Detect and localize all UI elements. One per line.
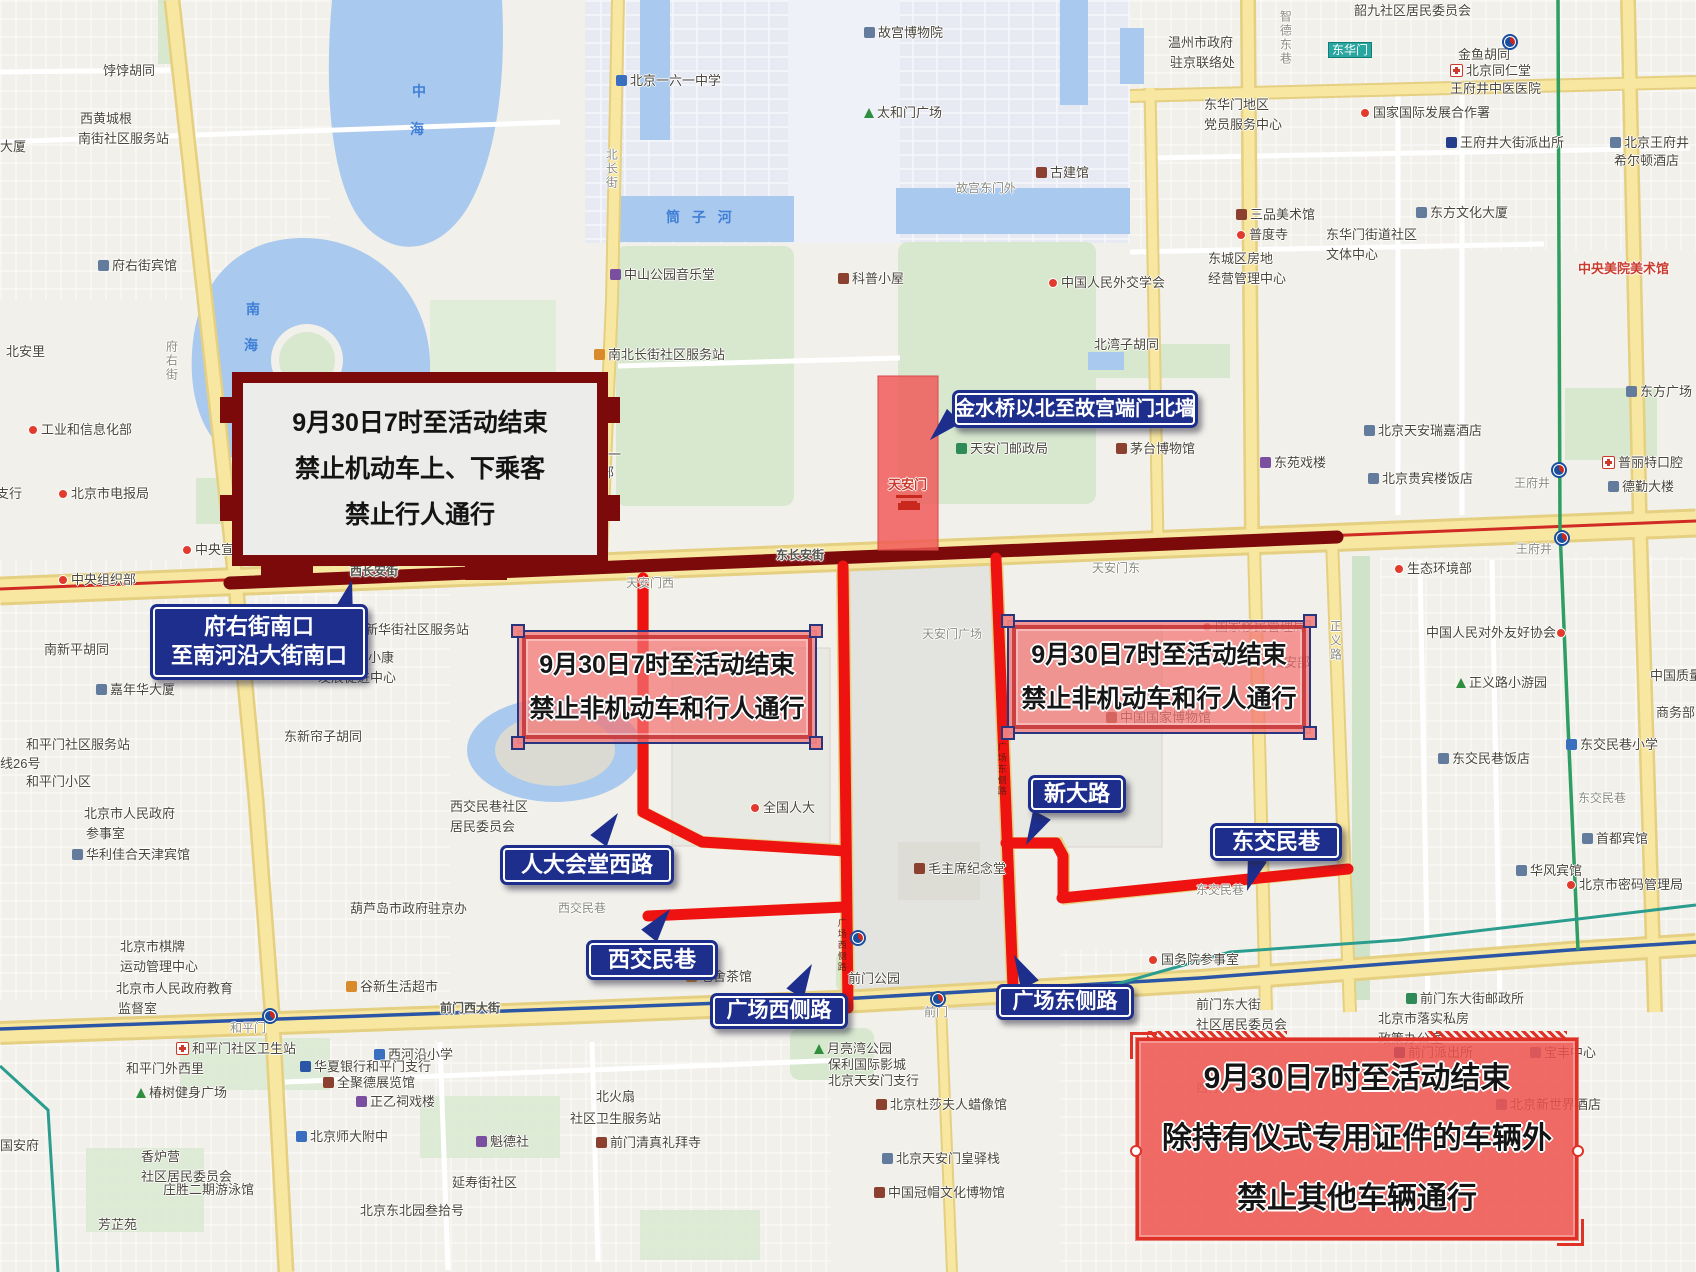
map-label: 经营管理中心	[1208, 271, 1286, 287]
map-label: 华利佳合天津宾馆	[72, 847, 190, 863]
map-label-text: 府右街	[164, 340, 178, 382]
map-label: 北京市密码管理局	[1566, 877, 1683, 893]
map-label-text: 全国人大	[763, 800, 815, 816]
map-label: 国安府	[0, 1138, 39, 1154]
tree-icon	[136, 1088, 146, 1098]
map-label-text: 中央美院美术馆	[1578, 261, 1669, 277]
callout-body: 西交民巷	[589, 943, 715, 977]
school-icon	[296, 1131, 307, 1142]
museum-icon	[876, 1099, 887, 1110]
map-label: 商务部	[1656, 705, 1695, 721]
restriction-line: 9月30日7时至活动结束	[519, 643, 815, 687]
map-label: 西长安街	[350, 564, 398, 578]
map-label: 科普小屋	[838, 271, 904, 287]
callout-label: 金水桥以北至故宫端门北墙	[955, 396, 1195, 422]
callout-body: 人大会堂西路	[503, 848, 671, 882]
map-label-text: 王府井	[1514, 476, 1550, 490]
map-label-text: 东苑戏楼	[1274, 455, 1326, 471]
map-label: 温州市政府	[1168, 35, 1233, 51]
map-label: 月亮湾公园	[814, 1041, 892, 1057]
map-label: 东新帘子胡同	[284, 729, 362, 745]
theater-icon	[356, 1096, 367, 1107]
map-label-text: 华夏银行和平门支行	[314, 1059, 431, 1075]
map-label: 生态环境部	[1394, 561, 1472, 577]
map-label: 谷新生活超市	[346, 979, 438, 995]
map-label-text: 故宫东门外	[956, 181, 1016, 195]
map-label-text: 前门东大街	[1196, 997, 1261, 1013]
map-label-text: 古建馆	[1050, 165, 1089, 181]
map-label: 东方文化大厦	[1416, 205, 1508, 221]
map-label-text: 北京东北园叁拾号	[360, 1203, 464, 1219]
map-label-text: 东新帘子胡同	[284, 729, 362, 745]
map-label-text: 天安门邮政局	[970, 441, 1048, 457]
callout-label: 广场西侧路	[727, 997, 832, 1024]
map-label: 海	[244, 337, 262, 354]
map-label: 全聚德展览馆	[323, 1075, 415, 1091]
map-label-text: 文体中心	[1326, 247, 1378, 263]
map-label: 前门东大街邮政所	[1406, 991, 1524, 1007]
map-label-text: 北京天安门皇驿栈	[896, 1151, 1000, 1167]
restriction-line: 禁止其他车辆通行	[1139, 1169, 1575, 1229]
map-label: 北京市棋牌	[120, 939, 185, 955]
map-label-text: 北京杜莎夫人蜡像馆	[890, 1097, 1007, 1113]
map-label-text: 东城区房地	[1208, 251, 1273, 267]
map-label: 保利国际影城	[828, 1057, 906, 1073]
map-label-text: 温州市政府	[1168, 35, 1233, 51]
map-label-text: 北京市人民政府教育	[116, 981, 233, 997]
notice-line: 禁止行人通行	[243, 492, 597, 538]
map-label: 天安门邮政局	[956, 441, 1048, 457]
map-label: 中国质量大厦	[1650, 668, 1696, 684]
museum-icon	[596, 1137, 607, 1148]
map-label: 北京天安门支行	[828, 1073, 919, 1089]
dot-icon	[1360, 108, 1370, 118]
map-label-text: 广场东侧路	[996, 742, 1007, 797]
bld-icon	[96, 684, 107, 695]
map-label: 嘉年华大厦	[96, 682, 175, 698]
dot-icon	[1148, 955, 1158, 965]
map-icon	[896, 495, 925, 510]
map-label-text: 东华门街道社区	[1326, 227, 1417, 243]
map-label: 北新华街社区服务站	[352, 622, 469, 638]
map-label-text: 和平门小区	[26, 774, 91, 790]
map-label: 北京市人民政府	[84, 806, 175, 822]
map-label: 北京市落实私房	[1378, 1011, 1469, 1027]
map-label: 府右街	[164, 340, 178, 382]
map-label-text: 普度寺	[1249, 227, 1288, 243]
map-label-text: 芳芷苑	[98, 1217, 137, 1233]
notice-line: 9月30日7时至活动结束	[243, 400, 597, 446]
map-label-text: 西单支行	[0, 486, 22, 502]
map-label: 南	[246, 301, 264, 318]
shop-icon	[346, 981, 357, 992]
map-label-text: 筒 子 河	[666, 209, 736, 226]
map-label-text: 参事室	[86, 826, 125, 842]
map-label-text: 广场西侧路	[836, 918, 847, 973]
map-label: 中	[412, 83, 430, 100]
map-label-text: 北京天安瑞嘉酒店	[1378, 423, 1482, 439]
map-label: 东交民巷	[1578, 791, 1626, 805]
map-label: 前门西大街	[440, 1001, 500, 1015]
notice-banner-changan: 9月30日7时至活动结束 禁止机动车上、下乘客 禁止行人通行	[232, 372, 608, 566]
map-label: 中山公园音乐堂	[610, 267, 715, 283]
map-label-text: 社区卫生服务站	[570, 1111, 661, 1127]
dot-icon	[58, 489, 68, 499]
dot-icon	[1236, 230, 1246, 240]
map-label-text: 东华门地区	[1204, 97, 1269, 113]
metro-station-icon	[262, 1008, 278, 1024]
map-label: 国务院参事室	[1148, 952, 1239, 968]
map-label-text: 北京天安门支行	[828, 1073, 919, 1089]
map-label: 中国人民外交学会	[1048, 275, 1165, 291]
map-label: 香炉营	[141, 1149, 180, 1165]
map-label: 中国人民对外友好协会	[1426, 625, 1569, 641]
map-label: 北京市人民政府教育	[116, 981, 233, 997]
callout-label: 东交民巷	[1232, 828, 1320, 857]
dot-icon	[1048, 278, 1058, 288]
map-label-text: 西长安街	[350, 564, 398, 578]
map-label-text: 东交民巷小学	[1580, 737, 1658, 753]
map-label-text: 中	[412, 83, 430, 100]
map-label-text: 东交民巷饭店	[1452, 751, 1530, 767]
map-label: 居民委员会	[450, 819, 515, 835]
map-label: 延寿街社区	[452, 1175, 517, 1191]
map-label: 中国冠帽文化博物馆	[874, 1185, 1005, 1201]
map-label: 前门东大街	[1196, 997, 1261, 1013]
map-label-text: 庄胜二期游泳馆	[163, 1182, 254, 1198]
map-label: 中央美院美术馆	[1578, 261, 1669, 277]
bld-icon	[882, 1153, 893, 1164]
map-label: 东交民巷	[1196, 883, 1244, 897]
map-label-text: 东方广场	[1640, 384, 1692, 400]
map-label-text: 德勤大楼	[1622, 479, 1674, 495]
map-label: 天安门东	[1092, 561, 1140, 575]
map-label-text: 北新华街社区服务站	[352, 622, 469, 638]
map-label: 北京天安瑞嘉酒店	[1364, 423, 1482, 439]
metro-station-icon	[850, 930, 866, 946]
map-label: 北火扇	[596, 1089, 635, 1105]
map-label: 北京天安门皇驿栈	[882, 1151, 1000, 1167]
map-label-text: 监督室	[118, 1001, 157, 1017]
map-label-text: 北京市密码管理局	[1579, 877, 1683, 893]
map-label: 大厦	[0, 139, 26, 155]
map-label: 和平门小区	[26, 774, 91, 790]
map-label-text: 毛主席纪念堂	[928, 861, 1006, 877]
map-label: 故宫东门外	[956, 181, 1016, 195]
map-label-text: 王府井	[1516, 542, 1552, 556]
dot-icon	[1556, 628, 1566, 638]
map-label-text: 西交民巷	[558, 901, 606, 915]
map-label: 故宫博物院	[864, 25, 943, 41]
map-label: 西单支行	[0, 486, 22, 502]
map-label-text: 太和门广场	[877, 105, 942, 121]
map-label-text: 葫芦岛市政府驻京办	[350, 901, 467, 917]
police-icon	[1446, 137, 1457, 148]
map-label: 西交民巷社区	[450, 799, 528, 815]
map-label: 东城区房地	[1208, 251, 1273, 267]
restriction-line: 9月30日7时至活动结束	[1139, 1049, 1575, 1109]
map-label: 运动管理中心	[120, 959, 198, 975]
map-label-text: 前门公园	[848, 971, 900, 987]
restriction-line: 禁止非机动车和行人通行	[519, 687, 815, 731]
map-label-text: 西黄城根	[80, 111, 132, 127]
metro-station-icon	[1554, 530, 1570, 546]
map-label-text: 王府井大街派出所	[1460, 135, 1564, 151]
callout-jinshuiqiao: 金水桥以北至故宫端门北墙	[952, 390, 1198, 428]
map-label-text: 北京市人民政府	[84, 806, 175, 822]
map-label-text: 东华门	[1332, 43, 1368, 57]
map-label-text: 东方文化大厦	[1430, 205, 1508, 221]
tree-icon	[814, 1044, 824, 1054]
map-label-text: 党员服务中心	[1204, 117, 1282, 133]
map-label-text: 天安门广场	[922, 627, 982, 641]
restriction-line: 除持有仪式专用证件的车辆外	[1139, 1109, 1575, 1169]
map-label-text: 东交民巷	[1578, 791, 1626, 805]
map-label-text: 嘉年华大厦	[110, 682, 175, 698]
map-label: 东华门地区	[1204, 97, 1269, 113]
bld-icon	[1610, 137, 1621, 148]
map-label: 北京东北园叁拾号	[360, 1203, 464, 1219]
map-label: 南北长街社区服务站	[594, 347, 725, 363]
callout-label: 广场东侧路	[1013, 988, 1118, 1015]
museum-icon	[838, 273, 849, 284]
map-label-text: 线26号	[0, 756, 40, 772]
map-label: 东苑戏楼	[1260, 455, 1326, 471]
tree-icon	[864, 108, 874, 118]
map-label-text: 香炉营	[141, 1149, 180, 1165]
metro-station-icon	[930, 991, 946, 1007]
callout-label: 至南河沿大街南口	[171, 642, 347, 671]
map-label-text: 天安门	[888, 477, 927, 493]
map-label: 东华门	[1328, 42, 1372, 58]
map-label-text: 运动管理中心	[120, 959, 198, 975]
dot-icon	[58, 575, 68, 585]
map-label: 智德东巷	[1278, 10, 1292, 66]
restriction-zone-east: 9月30日7时至活动结束 禁止非机动车和行人通行	[1007, 620, 1311, 734]
map-label: 参事室	[86, 826, 125, 842]
map-label: 广场西侧路	[836, 918, 847, 973]
map-label: 府右街宾馆	[98, 258, 177, 274]
map-label: 南新平胡同	[44, 642, 109, 658]
map-label-text: 故宫博物院	[878, 25, 943, 41]
map-label-text: 北长街	[604, 148, 618, 190]
map-label-text: 智德东巷	[1278, 10, 1292, 66]
dot-icon	[1566, 880, 1576, 890]
map-label-text: 前门东大街邮政所	[1420, 991, 1524, 1007]
map-label-text: 北火扇	[596, 1089, 635, 1105]
map-label: 和平门	[230, 1021, 266, 1035]
map-label-text: 椿树健身广场	[149, 1085, 227, 1101]
map-label-text: 正义路	[1328, 620, 1342, 662]
map-label-text: 居民委员会	[450, 819, 515, 835]
map-label: 德勤大楼	[1608, 479, 1674, 495]
map-label: 北京师大附中	[296, 1129, 388, 1145]
map-label: 北京市电报局	[58, 486, 149, 502]
map-label-text: 和平门社区服务站	[26, 737, 130, 753]
map-label: 和平门外西里	[126, 1061, 204, 1077]
metro-station-icon	[1502, 34, 1518, 50]
shop-icon	[594, 349, 605, 360]
map-label-text: 中国人民外交学会	[1061, 275, 1165, 291]
map-label: 中央组织部	[58, 572, 136, 588]
map-label: 天安门广场	[922, 627, 982, 641]
map-label: 饽饽胡同	[103, 63, 155, 79]
map-label-text: 北京贵宾楼饭店	[1382, 471, 1473, 487]
map-label-text: 延寿街社区	[452, 1175, 517, 1191]
map-label: 东交民巷饭店	[1438, 751, 1530, 767]
bld-icon	[98, 260, 109, 271]
map-label-text: 中国人民对外友好协会	[1426, 625, 1556, 641]
map-label-text: 前门	[924, 1005, 948, 1019]
map-label: 筒 子 河	[666, 209, 736, 226]
map-label: 工业和信息化部	[28, 422, 132, 438]
post-icon	[956, 443, 967, 454]
map-label: 王府井大街派出所	[1446, 135, 1564, 151]
map-label: 北京贵宾楼饭店	[1368, 471, 1473, 487]
tree-icon	[1456, 678, 1466, 688]
restriction-zone-west: 9月30日7时至活动结束 禁止非机动车和行人通行	[517, 630, 817, 744]
map-label-text: 普丽特口腔	[1618, 455, 1683, 471]
map-label-text: 北京一六一中学	[630, 73, 721, 89]
map-label: 北京一六一中学	[616, 73, 721, 89]
map-label-text: 商务部	[1656, 705, 1695, 721]
restriction-line: 禁止非机动车和行人通行	[1009, 677, 1309, 721]
bld-icon	[1516, 865, 1527, 876]
map-label: 三品美术馆	[1236, 207, 1315, 223]
map-label-text: 府右街宾馆	[112, 258, 177, 274]
map-label-text: 大厦	[0, 139, 26, 155]
map-label-text: 魁德社	[490, 1134, 529, 1150]
map-label-text: 华利佳合天津宾馆	[86, 847, 190, 863]
museum-icon	[323, 1077, 334, 1088]
school-icon	[616, 75, 627, 86]
map-label-text: 北安里	[6, 344, 45, 360]
callout-body: 广场西侧路	[713, 996, 845, 1026]
map-label: 毛主席纪念堂	[914, 861, 1006, 877]
map-label-text: 南	[246, 301, 264, 318]
bld-icon	[1438, 753, 1449, 764]
map-label-text: 中央组织部	[71, 572, 136, 588]
map-label-text: 北湾子胡同	[1094, 337, 1159, 353]
map-label: 党员服务中心	[1204, 117, 1282, 133]
map-label-text: 前门西大街	[440, 1001, 500, 1015]
bld-icon	[72, 849, 83, 860]
map-label-text: 海	[244, 337, 262, 354]
callout-fuyoujie-nankou: 府右街南口至南河沿大街南口	[150, 604, 368, 680]
map-label-text: 南北长街社区服务站	[608, 347, 725, 363]
map-label-text: 前门清真礼拜寺	[610, 1135, 701, 1151]
dot-icon	[1394, 564, 1404, 574]
museum-icon	[874, 1187, 885, 1198]
map-label: 北京同仁堂	[1450, 63, 1531, 79]
map-label: 前门清真礼拜寺	[596, 1135, 701, 1151]
map-label: 监督室	[118, 1001, 157, 1017]
map-label: 古建馆	[1036, 165, 1089, 181]
map-label-text: 海	[410, 121, 428, 138]
map-label-text: 月亮湾公园	[827, 1041, 892, 1057]
map-label-text: 国安府	[0, 1138, 39, 1154]
map-label-text: 东长安街	[776, 548, 824, 562]
map-label-text: 北京师大附中	[310, 1129, 388, 1145]
map-label-text: 正义路小游园	[1469, 675, 1547, 691]
map-label-text: 韶九社区居民委员会	[1354, 3, 1471, 19]
map-label: 北长街	[604, 148, 618, 190]
callout-label: 府右街南口	[204, 613, 314, 642]
map-label-text: 经营管理中心	[1208, 271, 1286, 287]
map-label: 北京杜莎夫人蜡像馆	[876, 1097, 1007, 1113]
map-label-text: 王府井中医医院	[1450, 81, 1541, 97]
map-label-text: 希尔顿酒店	[1614, 153, 1679, 169]
theater-icon	[610, 269, 621, 280]
bld-icon	[1368, 473, 1379, 484]
map-label: 王府井	[1514, 476, 1550, 490]
restriction-zone-southeast: 9月30日7时至活动结束 除持有仪式专用证件的车辆外 禁止其他车辆通行	[1136, 1038, 1578, 1240]
dot-icon	[28, 425, 38, 435]
map-label: 椿树健身广场	[136, 1085, 227, 1101]
map-label: 前门公园	[848, 971, 900, 987]
map-label-text: 南街社区服务站	[78, 131, 169, 147]
map-label: 社区卫生服务站	[570, 1111, 661, 1127]
map-label-text: 国家国际发展合作署	[1373, 105, 1490, 121]
map-label-text: 北京王府井	[1624, 135, 1689, 151]
map-label: 线26号	[0, 756, 40, 772]
map-label-text: 北京同仁堂	[1466, 63, 1531, 79]
theater-icon	[1260, 457, 1271, 468]
map-label: 东交民巷小学	[1566, 737, 1658, 753]
map-label-text: 和平门	[230, 1021, 266, 1035]
map-label: 普丽特口腔	[1602, 455, 1683, 471]
theater-icon	[476, 1136, 487, 1147]
restriction-line: 9月30日7时至活动结束	[1009, 633, 1309, 677]
map-label-text: 科普小屋	[852, 271, 904, 287]
map-label-text: 北京市棋牌	[120, 939, 185, 955]
map-label: 韶九社区居民委员会	[1354, 3, 1471, 19]
map-label: 芳芷苑	[98, 1217, 137, 1233]
callout-label: 新大路	[1044, 780, 1110, 809]
map-label: 正义路	[1328, 620, 1342, 662]
hosp-icon	[176, 1042, 189, 1055]
museum-icon	[914, 863, 925, 874]
gate-icon	[896, 495, 922, 510]
map-label-text: 南新平胡同	[44, 642, 109, 658]
hosp-icon	[1450, 64, 1463, 77]
map-label-text: 茅台博物馆	[1130, 441, 1195, 457]
map-label: 广场东侧路	[996, 742, 1007, 797]
map-label: 全国人大	[750, 800, 815, 816]
map-label: 驻京联络处	[1170, 55, 1235, 71]
map-label: 金鱼胡同	[1458, 47, 1510, 63]
map[interactable]: 饽饽胡同西黄城根南街社区服务站大厦府右街宾馆北安里工业和信息化部西单支行北京市电…	[0, 0, 1696, 1272]
map-label-text: 西交民巷社区	[450, 799, 528, 815]
map-label-text: 中国冠帽文化博物馆	[888, 1185, 1005, 1201]
map-label: 文体中心	[1326, 247, 1378, 263]
hosp-icon	[1602, 456, 1615, 469]
map-label-text: 东交民巷	[1196, 883, 1244, 897]
map-label-text: 饽饽胡同	[103, 63, 155, 79]
map-label: 北京王府井	[1610, 135, 1689, 151]
callout-label: 人大会堂西路	[521, 851, 653, 880]
callout-guangchang-dongcelu: 广场东侧路	[996, 984, 1134, 1020]
map-label-text: 驻京联络处	[1170, 55, 1235, 71]
callout-body: 金水桥以北至故宫端门北墙	[955, 393, 1195, 425]
map-label-text: 生态环境部	[1407, 561, 1472, 577]
map-label-text: 全聚德展览馆	[337, 1075, 415, 1091]
map-label-text: 北京市落实私房	[1378, 1011, 1469, 1027]
map-label: 北湾子胡同	[1094, 337, 1159, 353]
map-label-text: 和平门外西里	[126, 1061, 204, 1077]
map-label-text: 中山公园音乐堂	[624, 267, 715, 283]
map-label: 西黄城根	[80, 111, 132, 127]
